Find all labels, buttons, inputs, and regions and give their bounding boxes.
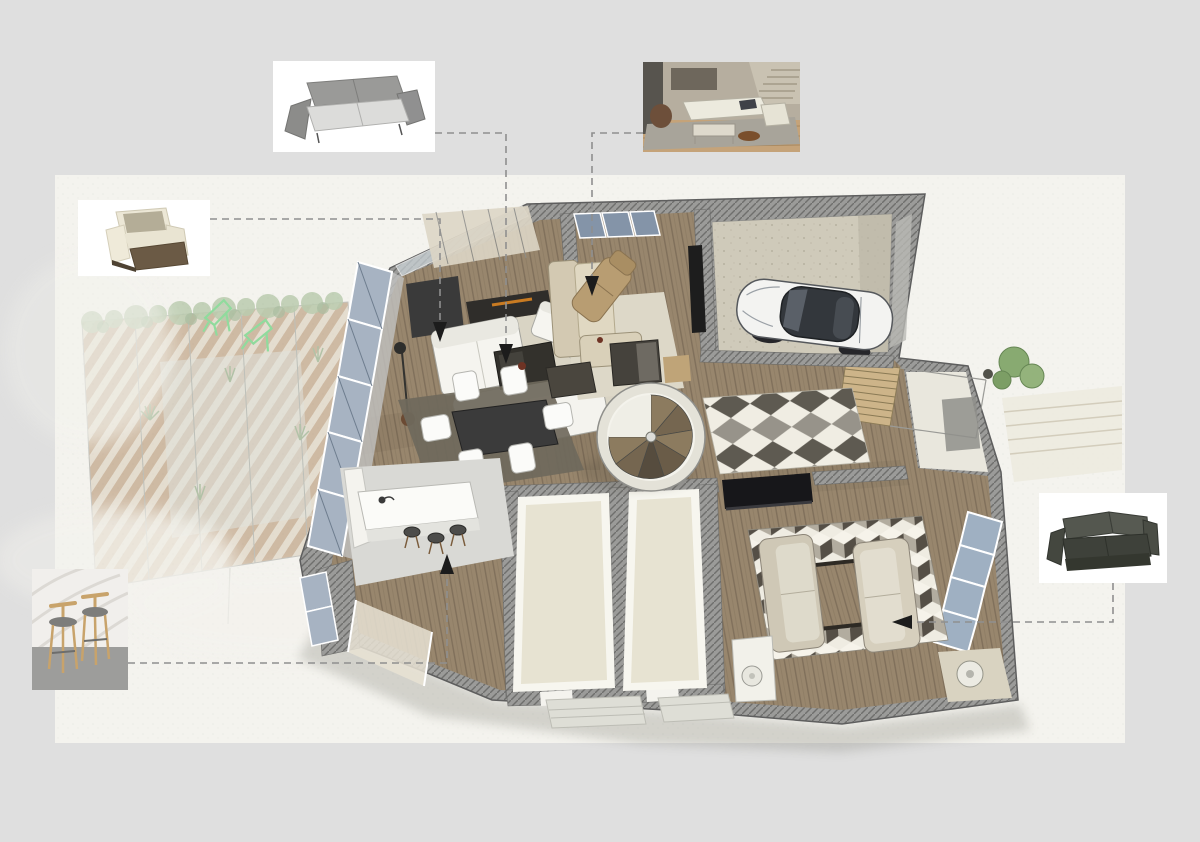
top-skylight (574, 211, 660, 238)
lounge-coffee-table (610, 340, 661, 386)
pouf (663, 355, 691, 383)
bath-nook (732, 636, 776, 702)
utility-unit (942, 397, 980, 452)
cream-armchair (106, 208, 188, 272)
floor-plan-scene (0, 0, 1200, 842)
grey-sofa-card: grey-fabric-sofa (273, 61, 435, 152)
empty-room-2 (623, 489, 707, 691)
armchair-card: cream-armchair (78, 200, 210, 276)
dark-sofa-card: charcoal-leather-sofa (1039, 493, 1167, 583)
se-patio (938, 648, 1012, 702)
charcoal-leather-sofa (1047, 512, 1159, 571)
design-board: grey-fabric-sofa white-sectional-sofa-in… (0, 0, 1200, 842)
bar-stools-photo (32, 569, 128, 690)
sideboard (546, 362, 596, 398)
empty-room-1 (513, 493, 615, 692)
interior-photo (643, 62, 800, 152)
building (300, 194, 1018, 728)
spiral-staircase (597, 383, 705, 491)
bar-stools-card: wooden-bar-stools-photo (32, 569, 128, 690)
diamond-rug (703, 388, 870, 474)
garage (712, 214, 912, 362)
grey-fabric-sofa (285, 76, 425, 143)
interior-photo-card: white-sectional-sofa-interior-photo (643, 62, 800, 152)
